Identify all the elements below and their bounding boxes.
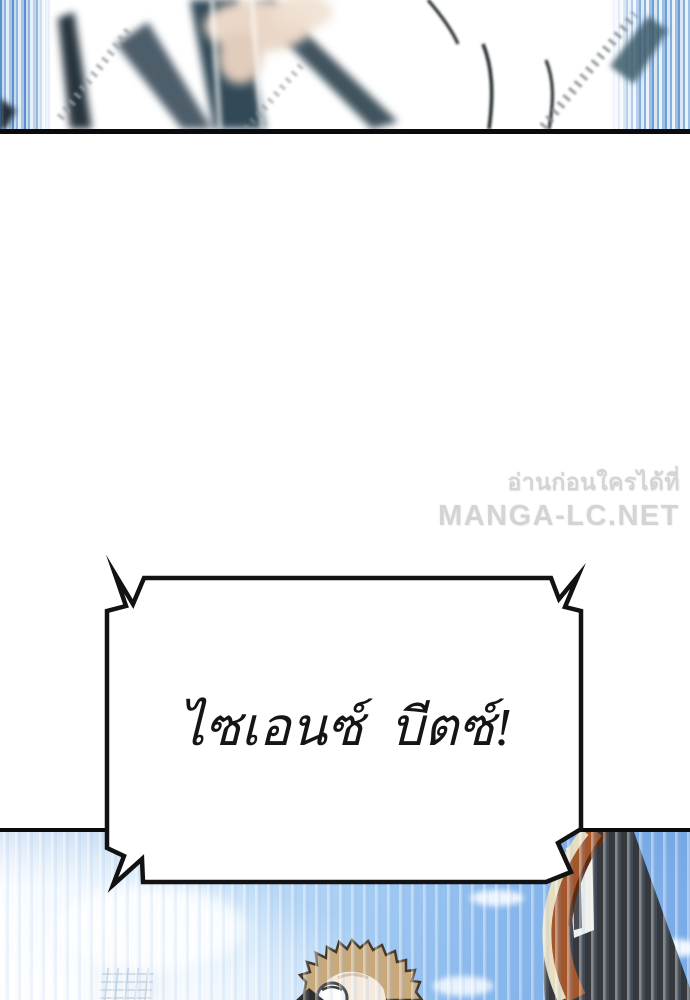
webtoon-page: อ่านก่อนใครได้ที่ MANGA-LC.NET	[0, 0, 690, 1000]
speech-bubble	[0, 0, 690, 1000]
speech-bubble-text: ไซเอนซ์ บีตซ์!	[127, 662, 563, 792]
